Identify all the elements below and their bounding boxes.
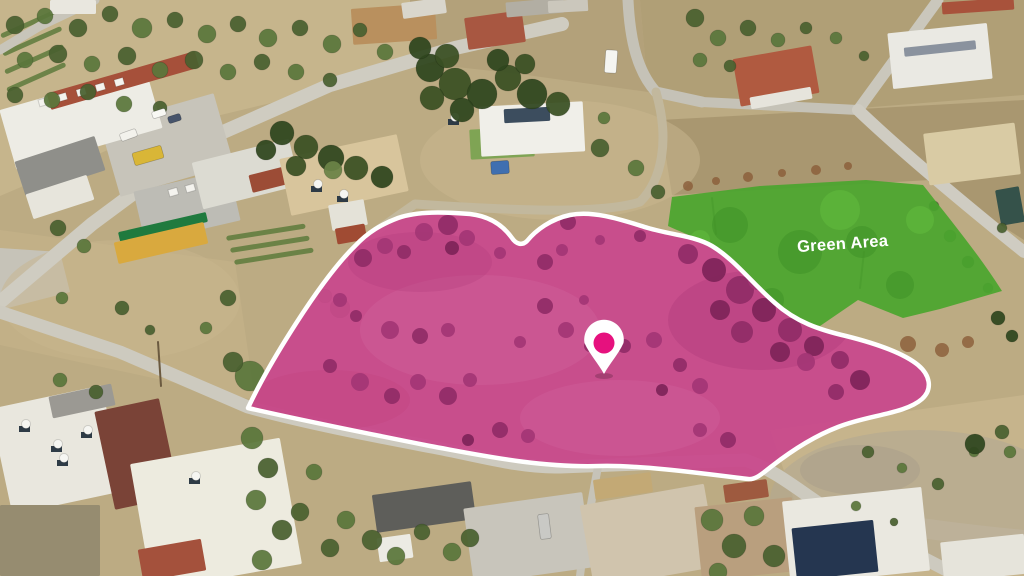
solar-array	[504, 107, 551, 123]
plot-tree	[438, 215, 458, 235]
plot-tree	[634, 230, 646, 242]
plot-tree	[710, 300, 730, 320]
tree	[259, 29, 277, 47]
villa	[887, 23, 992, 89]
plot-tree	[702, 258, 726, 282]
plot-tree	[850, 370, 870, 390]
grass-texture	[906, 206, 934, 234]
tree	[686, 9, 704, 27]
tree	[420, 86, 444, 110]
tree	[701, 509, 723, 531]
aerial-photo: Green Area	[0, 0, 1024, 576]
tree	[246, 490, 266, 510]
water-heater	[22, 420, 31, 429]
tree	[102, 6, 118, 22]
plot-ground-texture	[520, 380, 720, 456]
plot-tree	[412, 328, 428, 344]
tree	[353, 23, 367, 37]
tan-roof-house	[923, 123, 1021, 186]
shrub	[778, 169, 786, 177]
pin-dot	[594, 333, 615, 354]
plot-tree	[579, 295, 589, 305]
tree	[37, 8, 53, 24]
tree	[291, 503, 309, 521]
plot-tree	[410, 374, 426, 390]
shrub	[683, 181, 693, 191]
tree	[517, 79, 547, 109]
shrub	[712, 177, 720, 185]
water-heater	[84, 426, 93, 435]
tree	[744, 506, 764, 526]
courtyard	[0, 505, 100, 576]
tree	[995, 425, 1009, 439]
shrub	[811, 165, 821, 175]
plot-tree	[831, 351, 849, 369]
tree	[443, 543, 461, 561]
grass-texture	[886, 271, 914, 299]
water-heater	[192, 472, 201, 481]
tree	[932, 478, 944, 490]
tree	[17, 52, 33, 68]
tree	[897, 463, 907, 473]
van	[604, 50, 618, 74]
tree	[252, 550, 272, 570]
tree	[859, 51, 869, 61]
tree	[292, 20, 308, 36]
tree	[515, 54, 535, 74]
plot-tree	[797, 353, 815, 371]
tree	[1006, 330, 1018, 342]
plot-tree	[828, 384, 844, 400]
tree	[306, 464, 322, 480]
tree	[591, 139, 609, 157]
tree	[628, 160, 644, 176]
tree	[450, 98, 474, 122]
tree	[740, 20, 756, 36]
tree	[241, 427, 263, 449]
water-heater	[314, 180, 323, 189]
tree	[724, 60, 736, 72]
plot-tree	[537, 298, 553, 314]
tree	[771, 33, 785, 47]
tree	[387, 547, 405, 565]
tree	[461, 529, 479, 547]
tree	[651, 185, 665, 199]
plot-tree	[558, 322, 574, 338]
building	[548, 0, 589, 13]
plot-tree	[514, 336, 526, 348]
tree	[220, 64, 236, 80]
tree	[145, 325, 155, 335]
tree	[800, 22, 812, 34]
shrub	[935, 343, 949, 357]
plot-tree	[441, 323, 455, 337]
plot-tree	[770, 342, 790, 362]
tree	[693, 53, 707, 67]
tree	[200, 322, 212, 334]
tree	[862, 446, 874, 458]
plot-tree	[462, 434, 474, 446]
tree	[598, 112, 610, 124]
plot-tree	[445, 241, 459, 255]
tree	[362, 530, 382, 550]
tree	[323, 73, 337, 87]
tree	[710, 30, 726, 46]
grass-texture	[820, 190, 860, 230]
tree	[167, 12, 183, 28]
tree	[409, 37, 431, 59]
tree	[53, 373, 67, 387]
tree	[286, 156, 306, 176]
plot-tree	[692, 378, 708, 394]
plot-tree	[397, 245, 411, 259]
plot-tree	[731, 321, 753, 343]
plot-tree	[678, 244, 698, 264]
tree	[220, 290, 236, 306]
plot-tree	[384, 388, 400, 404]
plot-tree	[537, 254, 553, 270]
tree	[230, 16, 246, 32]
tractor	[491, 160, 510, 174]
tree	[50, 220, 66, 236]
tree	[851, 501, 861, 511]
tree	[371, 166, 393, 188]
tree	[84, 56, 100, 72]
tree	[254, 54, 270, 70]
tree	[118, 47, 136, 65]
plot-tree	[720, 432, 736, 448]
tree	[435, 44, 459, 68]
tree	[80, 84, 96, 100]
tree	[272, 520, 292, 540]
tree	[49, 45, 67, 63]
shrub	[743, 172, 753, 182]
plot-tree	[350, 310, 362, 322]
tree	[132, 18, 152, 38]
tree	[546, 92, 570, 116]
tree	[722, 534, 746, 558]
aerial-photo-stage: Green Area	[0, 0, 1024, 576]
tree	[965, 434, 985, 454]
tree	[344, 156, 368, 180]
tree	[323, 35, 341, 53]
plot-tree	[415, 223, 433, 241]
tree	[1004, 446, 1016, 458]
solar-panel-array	[792, 520, 879, 576]
tree	[337, 511, 355, 529]
plot-tree	[377, 238, 393, 254]
tree	[258, 458, 278, 478]
tree	[321, 539, 339, 557]
tree	[56, 292, 68, 304]
tree	[294, 135, 318, 159]
plot-tree	[492, 422, 508, 438]
plot-tree	[351, 373, 369, 391]
plot-tree	[521, 429, 535, 443]
plot-tree	[693, 423, 707, 437]
plot-tree	[463, 373, 477, 387]
grass-texture	[712, 207, 748, 243]
plot-tree	[595, 235, 605, 245]
plot-tree	[323, 359, 337, 373]
tree	[377, 44, 393, 60]
tree	[414, 524, 430, 540]
tree	[77, 239, 91, 253]
tree	[7, 87, 23, 103]
plot-tree	[673, 358, 687, 372]
plot-tree	[381, 321, 399, 339]
shrub	[844, 162, 852, 170]
tree	[198, 25, 216, 43]
tree	[288, 64, 304, 80]
tree	[152, 62, 168, 78]
tree	[890, 518, 898, 526]
plot-tree	[556, 244, 568, 256]
tree	[69, 19, 87, 37]
building	[50, 0, 96, 14]
plot-tree	[354, 249, 372, 267]
tree	[6, 16, 24, 34]
water-heater	[340, 190, 349, 199]
plot-tree	[459, 230, 475, 246]
plot-tree	[494, 247, 506, 259]
plot-tree	[333, 293, 347, 307]
tree	[185, 51, 203, 69]
tree	[115, 301, 129, 315]
tree	[763, 545, 785, 567]
tree	[116, 96, 132, 112]
tree	[997, 223, 1007, 233]
tree	[487, 49, 509, 71]
plot-tree	[804, 336, 824, 356]
shrub	[962, 336, 974, 348]
plot-tree	[439, 387, 457, 405]
tree	[991, 311, 1005, 325]
shrub	[900, 336, 916, 352]
plot-tree	[646, 332, 662, 348]
water-heater	[60, 454, 69, 463]
plot-tree	[656, 384, 668, 396]
water-heater	[54, 440, 63, 449]
tree	[223, 352, 243, 372]
tree	[830, 32, 842, 44]
tree	[256, 140, 276, 160]
tree	[89, 385, 103, 399]
tree	[270, 121, 294, 145]
tree	[324, 161, 342, 179]
tree	[44, 92, 60, 108]
